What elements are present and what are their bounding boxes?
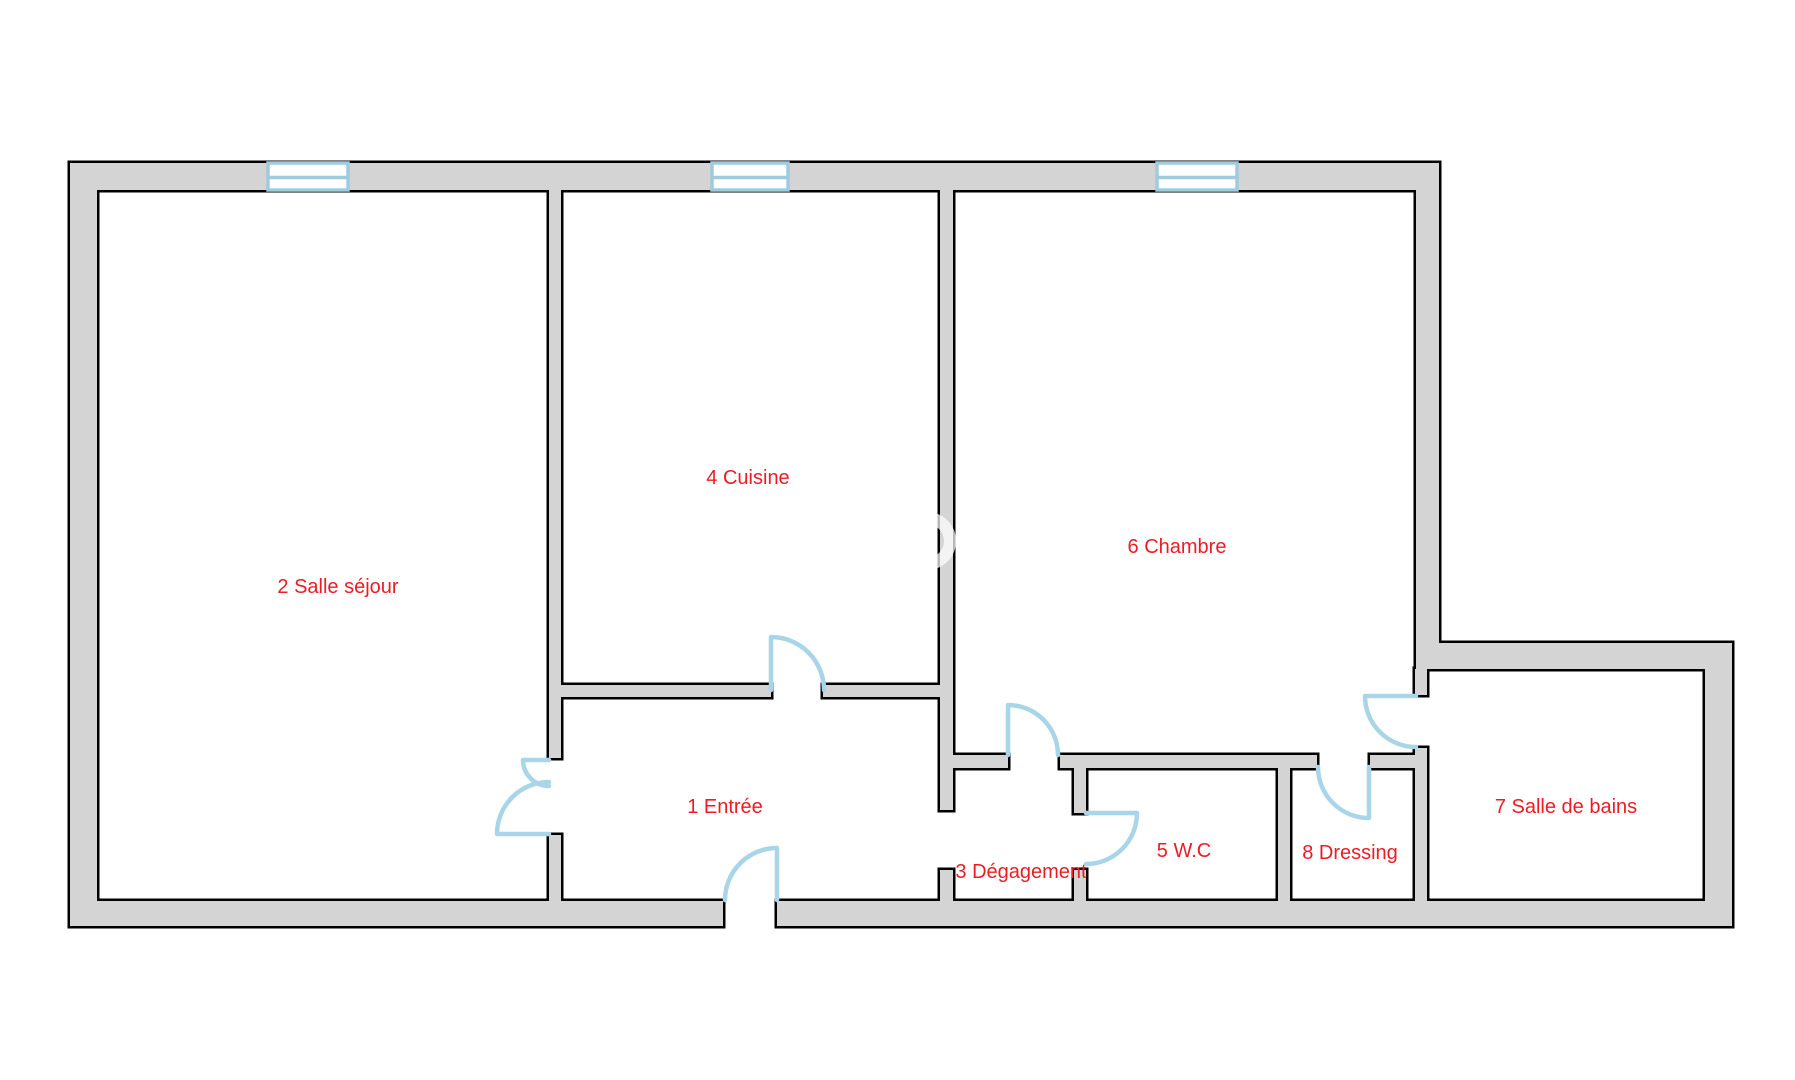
sejour-cuisine-upper <box>549 190 561 758</box>
wc-left-upper <box>1074 768 1086 813</box>
exterior-bottom-left <box>70 901 723 926</box>
floorplan-canvas <box>0 0 1795 1080</box>
dressing-top <box>1370 755 1415 768</box>
degagement-stub-lower <box>940 870 953 901</box>
degagement-stub-horiz <box>952 755 1008 768</box>
cuisine-bottom-left <box>549 685 771 697</box>
door-chambre <box>1008 705 1058 755</box>
extension-right <box>1705 643 1732 926</box>
room-label-dressing: 8 Dressing <box>1302 843 1398 863</box>
door-sejour-large-leaf <box>497 782 549 834</box>
door-cuisine <box>771 637 824 690</box>
room-label-cuisine: 4 Cuisine <box>706 468 789 488</box>
room-label-entr-e: 1 Entrée <box>687 797 763 817</box>
exterior-left <box>70 163 97 926</box>
chambre-bottom <box>1060 755 1317 768</box>
exterior-bottom-right <box>777 901 1730 926</box>
sejour-lower <box>549 835 561 901</box>
door-entrance <box>725 848 777 900</box>
exterior-right-main <box>1416 163 1439 669</box>
extension-top <box>1416 643 1730 669</box>
bathroom-left <box>1415 748 1427 901</box>
room-label-chambre: 6 Chambre <box>1128 537 1227 557</box>
room-label-w-c: 5 W.C <box>1157 841 1211 861</box>
floorplan-page: 1 Entrée2 Salle séjour3 Dégagement4 Cuis… <box>0 0 1795 1080</box>
cuisine-chambre <box>940 190 953 810</box>
door-wc <box>1086 813 1137 864</box>
door-bathroom <box>1365 696 1416 747</box>
door-dressing <box>1318 767 1369 818</box>
room-label-salle-s-jour: 2 Salle séjour <box>277 577 398 597</box>
room-label-d-gagement: 3 Dégagement <box>955 862 1086 882</box>
room-label-salle-de-bains: 7 Salle de bains <box>1495 797 1637 817</box>
exterior-right-stub <box>1415 669 1427 695</box>
wc-dressing-divider <box>1278 768 1290 901</box>
cuisine-bottom-right <box>823 685 952 697</box>
